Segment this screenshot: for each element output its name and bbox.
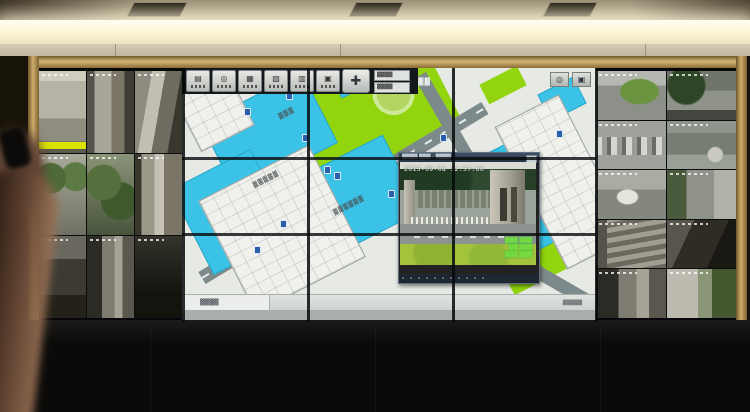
toolbar-readouts: ▓▓▓▓ ▓▓▓▓ [374,70,410,93]
measure-icon: ▧ [272,75,280,83]
camera-timestamp-overlay [138,239,164,241]
panel-bezel [182,157,596,160]
camera-tile[interactable] [596,121,666,170]
map-toolbar-button-locate[interactable]: ◎ [212,70,236,92]
popup-status-strip [399,274,539,283]
gis-map-screen: ▓▓▓▓▓ ▓▓▓▓▓▓ ▓▓▓ ▓▓ ▤◎▦▧▥▣✚ ▓▓▓▓ ▓▓▓▓ ◎ … [182,68,596,322]
panel-bezel [182,68,185,322]
map-tool-button-annotate[interactable]: ▣ [572,72,591,87]
toolbar-readout: ▓▓▓▓ [374,70,410,81]
wall-frame-top [28,56,747,68]
camera-timestamp-overlay [599,74,637,76]
video-gate-pillar-right [490,170,525,230]
camera-tile[interactable] [596,269,666,318]
camera-timestamp-overlay [138,74,164,76]
toolbar-button-label [191,85,205,88]
camera-tile[interactable] [87,71,134,153]
camera-timestamp-overlay [90,74,116,76]
camera-timestamp-overlay [670,173,708,175]
pillar-window [500,188,506,221]
camera-timestamp-overlay [670,223,708,225]
map-toolbar-button-grid-view[interactable]: ▦ [238,70,262,92]
map-tool-button-target[interactable]: ◎ [550,72,569,87]
panel-bezel [307,68,310,322]
camera-timestamp-overlay [599,173,637,175]
map-pan-control[interactable]: ✚ [342,69,370,93]
camera-marker-icon[interactable] [324,166,331,174]
map-status-tab[interactable]: ▓▓▓▓ [182,295,270,311]
grid-view-icon: ▦ [246,75,254,83]
wall-frame-right [736,56,747,324]
map-toolbar-button-measure[interactable]: ▧ [264,70,288,92]
camera-marker-icon[interactable] [334,172,341,180]
camera-timestamp-overlay [670,124,708,126]
map-green-area [479,68,526,104]
live-video-popup: ▓▓▓▓ ▓▓▓ - ▓▓▓▓ × 2015-09-08 12:57:00 ▓▓… [398,152,540,284]
video-camera-info: ▓▓▓ ▓▓▓▓▓ ▓▓▓▓▓▓ ▓▓▓ [505,238,532,259]
ceiling-vent [126,2,188,17]
layers-icon: ▤ [194,75,202,83]
toolbar-button-label [217,85,231,88]
road-markings [414,236,509,238]
camera-timestamp-overlay [138,157,164,159]
camera-timestamp-overlay [670,74,708,76]
right-camera-grid [596,71,736,318]
camera-timestamp-overlay [42,157,68,159]
panel-bezel [595,68,598,322]
cabinet-seam [600,326,601,412]
camera-marker-icon[interactable] [388,190,395,198]
map-toolbar-button-list[interactable]: ▥ [290,70,314,92]
control-room-photo: ▓▓▓▓▓ ▓▓▓▓▓▓ ▓▓▓ ▓▓ ▤◎▦▧▥▣✚ ▓▓▓▓ ▓▓▓▓ ◎ … [0,0,750,412]
ceiling-shadow-right [630,0,750,22]
map-label: ▓▓ [418,78,431,86]
camera-tile[interactable] [596,71,666,120]
cove-light [0,20,750,46]
list-icon: ▥ [298,75,306,83]
toolbar-button-label [243,85,257,88]
camera-timestamp-overlay [90,157,116,159]
panel-bezel [182,233,596,236]
video-wall-screens: ▓▓▓▓▓ ▓▓▓▓▓▓ ▓▓▓ ▓▓ ▤◎▦▧▥▣✚ ▓▓▓▓ ▓▓▓▓ ◎ … [39,68,736,322]
ceiling-vent [348,2,404,17]
camera-marker-icon[interactable] [254,246,261,254]
camera-tile[interactable] [87,154,134,236]
pillar-window [511,187,517,222]
cabinet-seam [150,326,151,412]
camera-highlight-bar [39,142,86,149]
camera-timestamp-overlay [599,124,637,126]
map-toolbar-button-select-region[interactable]: ▣ [316,70,340,92]
camera-tile[interactable] [667,170,737,219]
camera-timestamp-overlay [90,239,116,241]
camera-tile[interactable] [39,71,86,153]
toolbar-button-label [321,85,335,88]
map-toolbar-button-layers[interactable]: ▤ [186,70,210,92]
left-camera-grid [39,71,182,318]
camera-tile[interactable] [596,220,666,269]
camera-tile[interactable] [667,269,737,318]
camera-tile[interactable] [667,121,737,170]
video-fence [411,217,490,224]
camera-marker-icon[interactable] [556,130,563,138]
camera-tile[interactable] [596,170,666,219]
map-status-bar: ▓▓▓▓ ▓▓▓▓▓ [182,294,596,311]
popup-video-feed[interactable]: 2015-09-08 12:57:00 ▓▓▓ ▓▓▓▓▓ ▓▓▓▓▓▓ ▓▓▓ [400,162,536,265]
map-toolbar: ▤◎▦▧▥▣✚ ▓▓▓▓ ▓▓▓▓ [182,68,418,94]
map-status-right-text: ▓▓▓▓▓ [563,295,582,311]
map-canvas[interactable]: ▓▓▓▓▓ ▓▓▓▓▓▓ ▓▓▓ ▓▓ ▤◎▦▧▥▣✚ ▓▓▓▓ ▓▓▓▓ ◎ … [182,68,596,294]
camera-marker-icon[interactable] [440,134,447,142]
camera-timestamp-overlay [599,223,637,225]
camera-tile[interactable] [667,71,737,120]
video-timestamp: 2015-09-08 12:57:00 [404,165,484,173]
camera-tile[interactable] [135,154,182,236]
cabinet-seam [375,326,376,412]
camera-tile[interactable] [667,220,737,269]
camera-marker-icon[interactable] [244,108,251,116]
camera-tile[interactable] [135,71,182,153]
camera-tile[interactable] [135,236,182,318]
camera-tile[interactable] [87,236,134,318]
camera-timestamp-overlay [670,272,708,274]
panel-bezel [452,68,455,322]
camera-timestamp-overlay [599,272,637,274]
locate-icon: ◎ [221,75,228,83]
toolbar-button-label [269,85,283,88]
camera-marker-icon[interactable] [280,220,287,228]
ceiling-vent [542,2,598,17]
toolbar-readout: ▓▓▓▓ [374,82,410,93]
camera-timestamp-overlay [42,74,68,76]
select-region-icon: ▣ [324,75,332,83]
ceiling-shadow-left [0,0,140,22]
